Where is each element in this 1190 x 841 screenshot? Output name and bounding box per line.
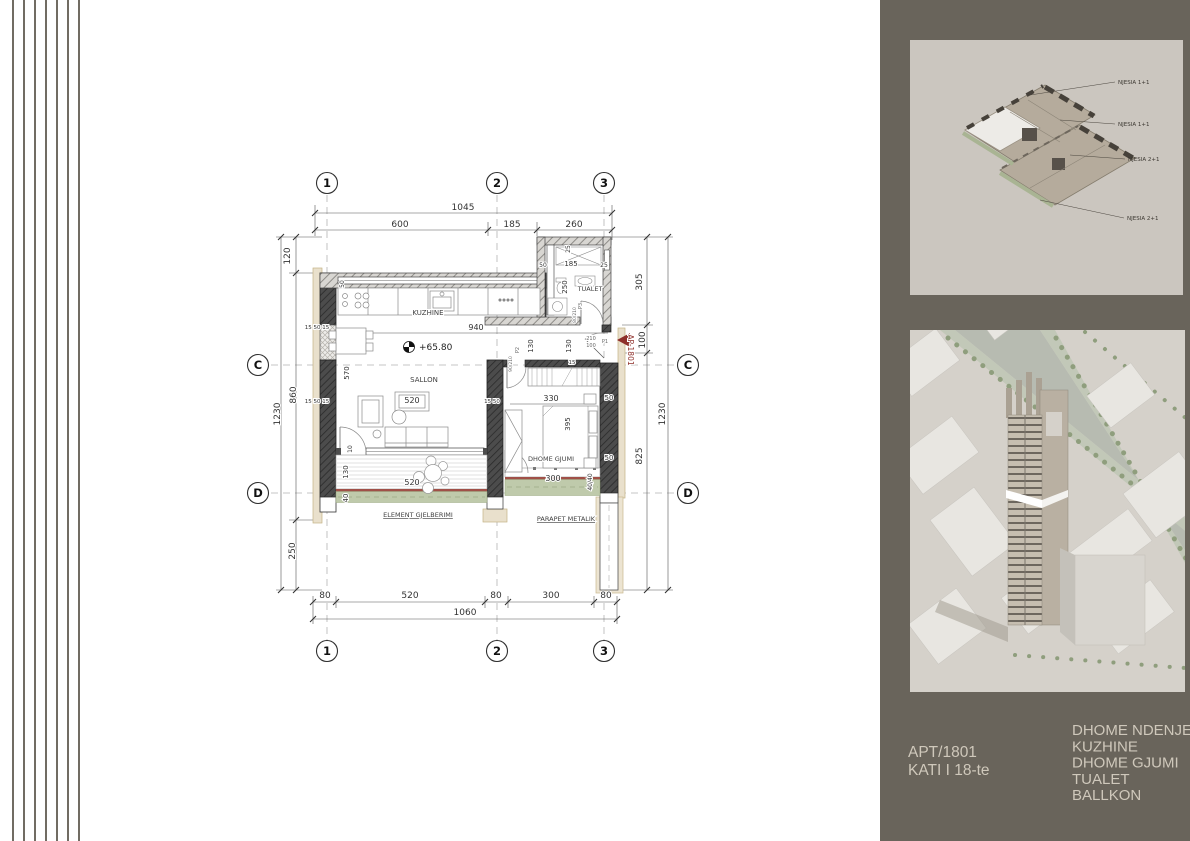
washing-machine [548,298,567,315]
column-grid2 [487,360,503,497]
nightstand-top [584,394,596,404]
side-panel: NJESIA 1+1NJESIA 1+1NJESIA 2+1NJESIA 2+1 [776,0,1190,841]
sofa [385,427,448,447]
unit-label-0: NJESIA 1+1 [1118,80,1149,86]
floor-label: KATI I 18-te [908,762,990,779]
room-list-item-0: DHOME NDENJE [1072,722,1190,739]
dim-tualet-25b: 25 [565,245,572,253]
dim-wall-1550: 15 50 [484,399,500,405]
room-label-dhome-gjumi: DHOME GJUMI [528,455,574,463]
floor-plan: 1045600185260120860123025030510082512308… [248,173,699,662]
room-list-item-2: DHOME GJUMI [1072,755,1179,772]
dim-sallon-570: 570 [343,366,351,379]
dim-corridor-130a: 130 [527,339,535,352]
apartment-number: APT/1801 [908,744,977,761]
unit-label-2: NJESIA 2+1 [1128,157,1159,163]
grid-bubble-1-top-label: 1 [323,176,331,190]
dim-bedroom-balcony-300: 300 [545,474,560,483]
wall-left-main [320,360,336,497]
dim-wall-15: 15 [569,360,576,366]
grid-bubble-3-top-label: 3 [600,176,608,190]
axon-floorplate-image: NJESIA 1+1NJESIA 1+1NJESIA 2+1NJESIA 2+1 [910,40,1183,295]
dim-kitchen-940: 940 [468,323,483,332]
architectural-sheet: 1045600185260120860123025030510082512308… [0,0,1190,841]
dim-balcony-520: 520 [404,478,419,487]
grid-bubble-2-top-label: 2 [493,176,501,190]
dim-right-305: 305 [635,273,645,290]
room-list-item-3: TUALET [1072,771,1130,788]
left-decor-lines [13,0,79,841]
dim-top-260: 260 [565,220,582,230]
door-size-p1-b: 100 [586,343,596,349]
dim-left-250: 250 [288,542,298,559]
door-label-p3: P3 [578,303,584,309]
door-size-p2: 90/210 [508,356,514,372]
door-label-p2: P2 [515,347,521,353]
shower [556,247,601,265]
dim-corridor-130b: 130 [565,339,573,352]
dim-top-185: 185 [503,220,520,230]
dim-bed-395: 395 [564,417,572,430]
grid-bubble-3-bottom-label: 3 [600,644,608,658]
dim-tualet-250: 250 [561,280,569,293]
nightstand-bottom [584,458,596,468]
unit-label-3: NJESIA 2+1 [1127,216,1158,222]
wall-bedroom-partition [503,360,507,367]
wall-corridor-top [485,317,580,325]
annotation-element-gjelberimi: ELEMENT GJELBERIMI [383,511,453,519]
dim-bottom-80c: 80 [600,591,612,601]
grid-bubble-1-bottom-label: 1 [323,644,331,658]
dim-tualet-185: 185 [564,260,577,268]
door-size-p3: 80/210 [572,307,578,323]
room-list-item-1: KUZHINE [1072,738,1138,755]
wardrobe [528,368,600,386]
furniture-sallon [358,392,448,447]
sink [430,291,454,311]
small-table [373,430,381,438]
desk-unit [505,410,522,472]
apartment-marker-label: AP-1801 [626,334,635,366]
level-marker-icon [404,342,415,353]
wall-bedroom-right [600,363,618,493]
dim-wall-50a: 50 [605,394,614,402]
room-label-tualet: TUALET [577,285,603,293]
dim-bottom-80a: 80 [319,591,331,601]
dim-kitchen-wall-50: 50 [339,280,346,288]
dim-balcony-40: 40 [342,494,350,503]
room-label-sallon: SALLON [410,376,438,384]
dim-left-860: 860 [289,386,299,403]
side-table [392,410,406,424]
dim-right-100: 100 [638,331,648,348]
dim-bedroom-balcony-40-40: 40/40 [587,473,594,490]
dim-top-600: 600 [391,220,408,230]
grid-bubble-2-bottom-label: 2 [493,644,501,658]
dim-wall-155015a: 15 50 15 [305,325,330,331]
grid-bubble-C-left-label: C [254,358,262,372]
unit-label-1: NJESIA 1+1 [1118,122,1149,128]
dim-top-total: 1045 [452,203,475,213]
dim-bottom-520: 520 [401,591,418,601]
parapet-strip-sallon [336,489,487,492]
level-marker-label: +65.80 [419,343,453,353]
annotation-parapet-metalik: PARAPET METALIK [537,515,596,523]
door-label-p1: P1 [602,339,608,345]
grid-bubble-D-right-label: D [683,486,693,500]
dim-balcony-130: 130 [342,465,350,478]
dim-left-120: 120 [283,247,293,264]
armchair [358,396,383,427]
door-size-p1-a: 210 [586,336,596,342]
dim-balcony-10: 10 [347,445,354,453]
dim-bedroom-330: 330 [543,394,558,403]
wall-underlay-right [618,328,625,498]
room-list-item-4: BALLKON [1072,787,1141,804]
dim-left-total: 1230 [273,402,283,425]
dim-right-total: 1230 [658,402,668,425]
dim-wall-155015b: 15 50 15 [305,399,330,405]
dim-right-825: 825 [635,447,645,464]
dim-sallon-520: 520 [404,396,419,405]
dim-bottom-300: 300 [542,591,559,601]
dim-wall-50b: 50 [605,454,614,462]
dim-tualet-50: 50 [539,262,547,269]
dim-bottom-80b: 80 [490,591,502,601]
room-label-kuzhine: KUZHINE [412,309,443,317]
grid-bubble-D-left-label: D [253,486,263,500]
dim-bottom-total: 1060 [454,608,477,618]
dim-tualet-25a: 25 [600,262,608,269]
grid-bubble-C-right-label: C [684,358,692,372]
door-p3-tualet [581,301,603,324]
